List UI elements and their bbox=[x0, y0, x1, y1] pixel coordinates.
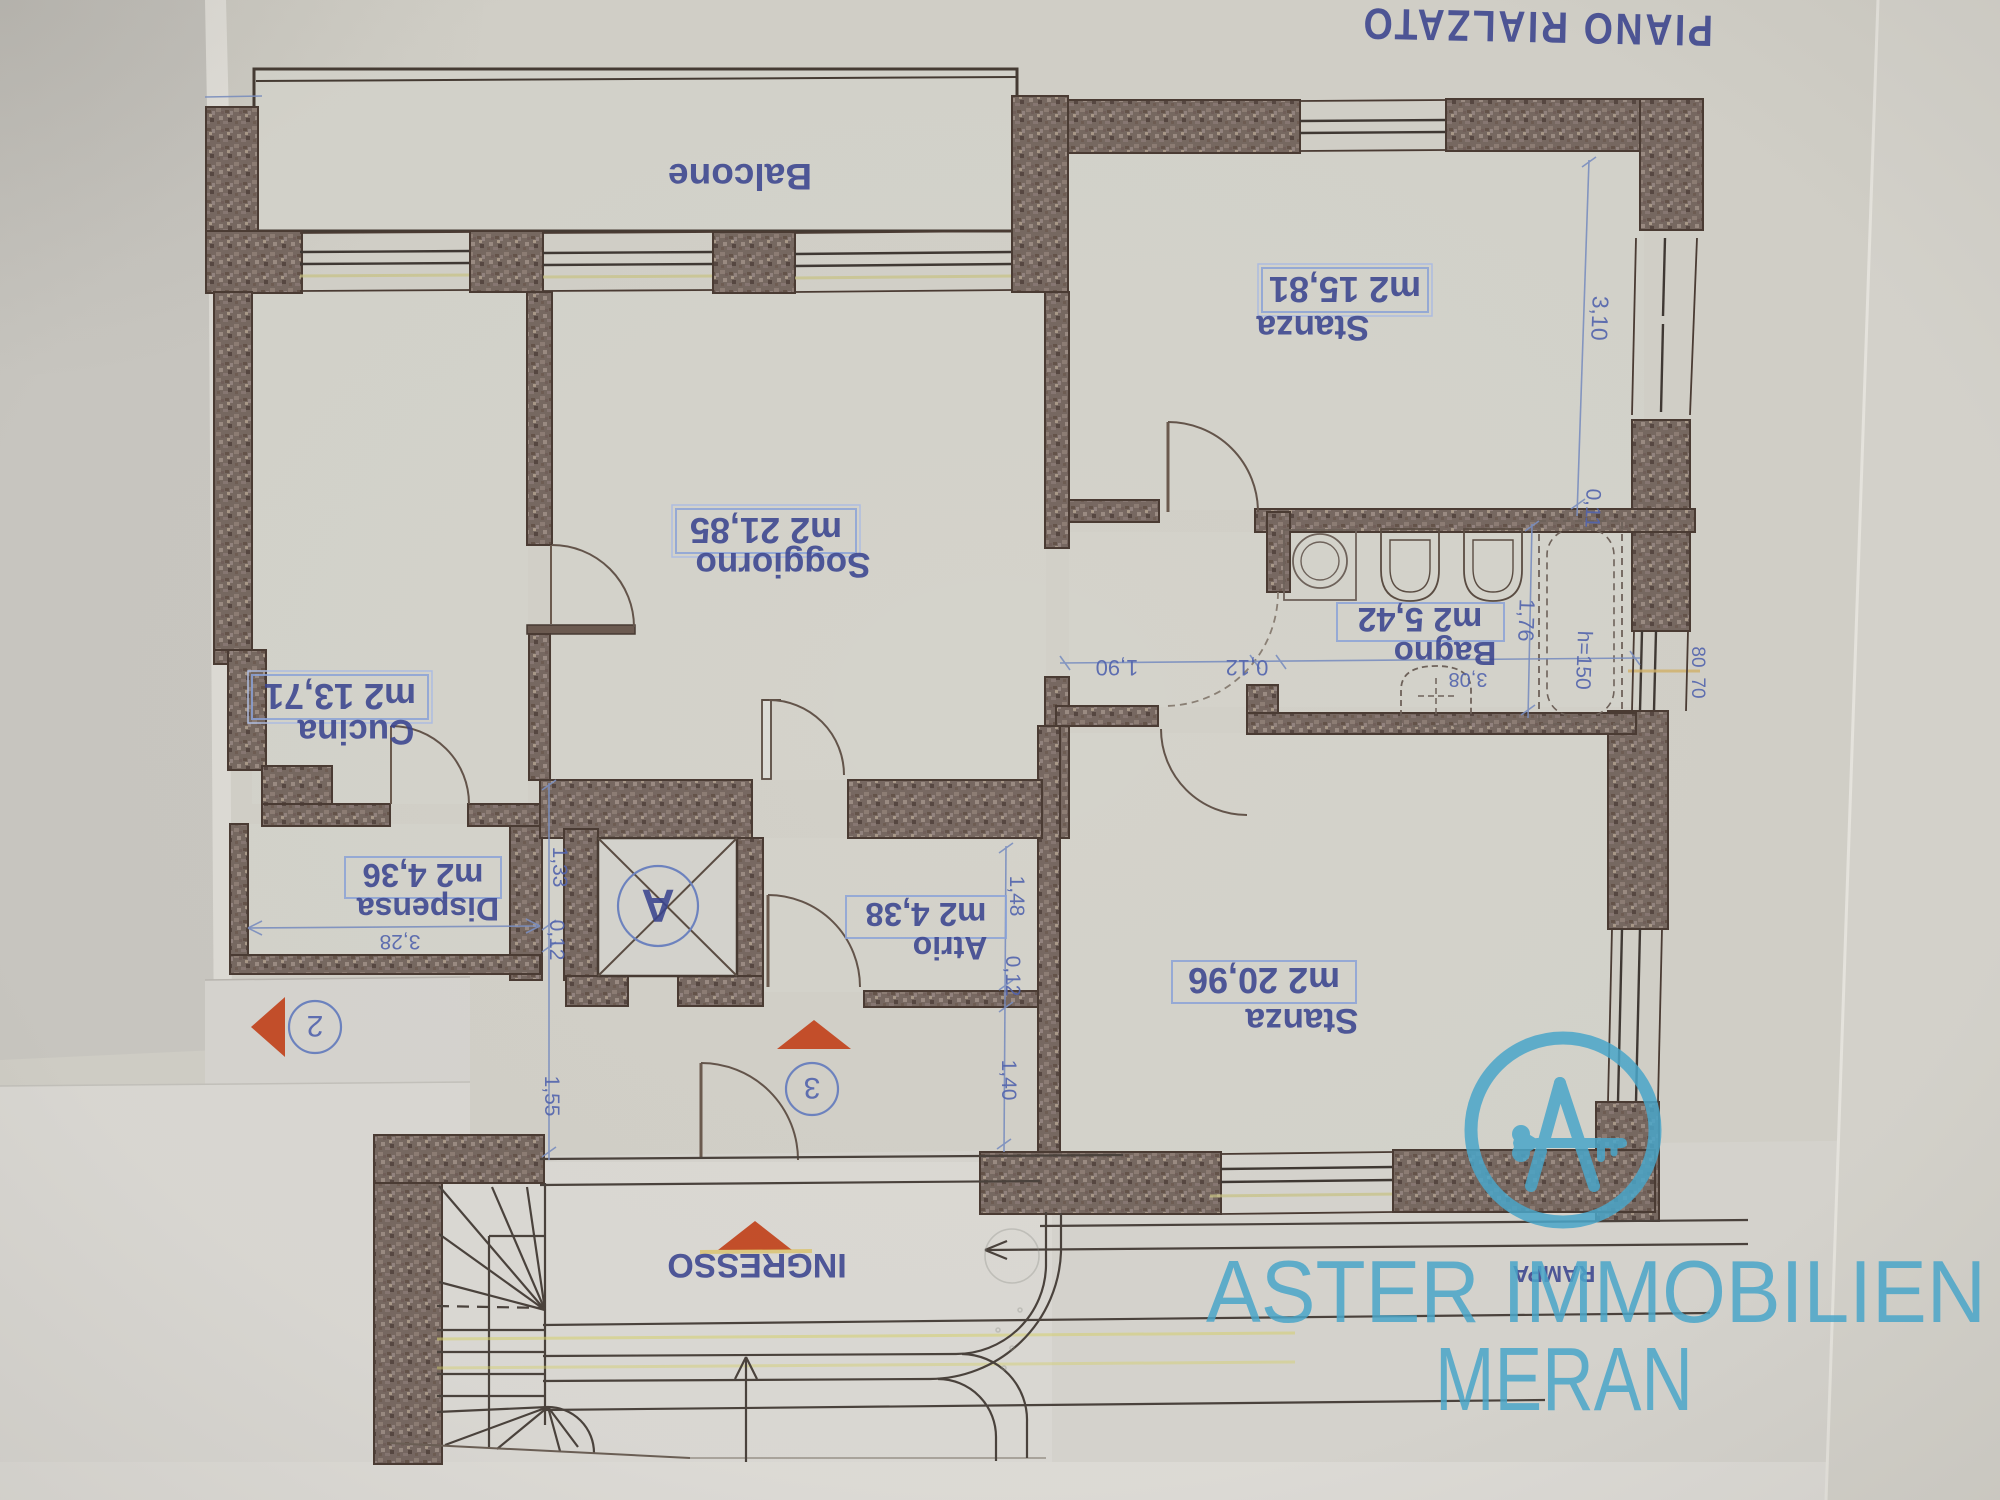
svg-text:MERAN: MERAN bbox=[1435, 1330, 1693, 1430]
svg-text:ASTER IMMOBILIEN: ASTER IMMOBILIEN bbox=[1206, 1242, 1986, 1341]
